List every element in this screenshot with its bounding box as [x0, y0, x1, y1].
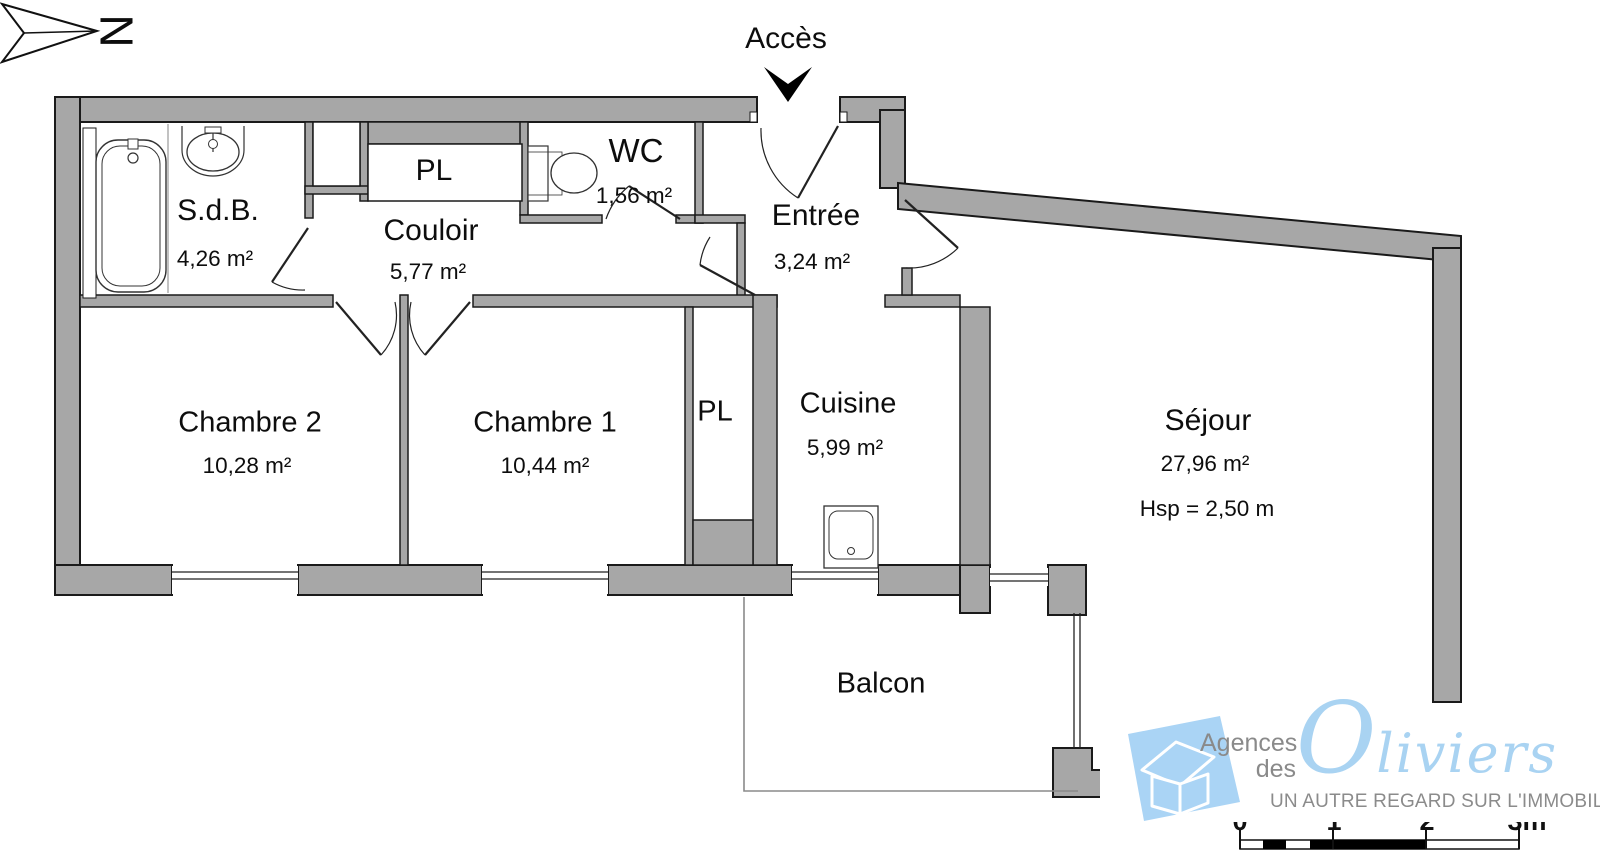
room-height-sejour: Hsp = 2,50 m	[1140, 496, 1274, 522]
room-area-cuisine: 5,99 m²	[807, 435, 883, 461]
agency-logo: Agences des Oliviers UN AUTRE REGARD SUR…	[1100, 704, 1560, 822]
access-arrow-icon	[764, 67, 812, 102]
room-label-balcon: Balcon	[837, 668, 926, 701]
scale-bar	[1240, 828, 1519, 849]
room-area-wc: 1,56 m²	[596, 183, 672, 209]
room-label-cuisine: Cuisine	[800, 388, 897, 421]
agency-brand: Oliviers	[1296, 690, 1558, 788]
chambre1-door	[410, 302, 470, 355]
room-area-chambre1: 10,44 m²	[501, 453, 590, 479]
north-label: N	[90, 14, 144, 47]
entry-door	[761, 126, 838, 198]
room-label-wc: WC	[609, 132, 664, 170]
agency-line1: Agences	[1200, 730, 1296, 756]
room-label-sdb: S.d.B.	[177, 194, 259, 228]
bathtub-icon	[96, 139, 166, 292]
room-area-chambre2: 10,28 m²	[203, 453, 292, 479]
agency-line2: des	[1200, 756, 1296, 782]
floorplan-page: N Accès S.d.B. 4,26 m² PL Couloir 5,77 m…	[0, 0, 1600, 851]
room-label-pl-top: PL	[416, 154, 453, 188]
sdb-door	[272, 228, 308, 290]
bathroom-sink-icon	[182, 126, 244, 176]
room-label-chambre1: Chambre 1	[473, 407, 616, 440]
agency-name-small: Agences des	[1200, 730, 1296, 782]
couloir-entree-door	[700, 237, 755, 295]
brand-rest: liviers	[1376, 722, 1558, 785]
room-label-couloir: Couloir	[383, 214, 478, 248]
room-area-entree: 3,24 m²	[774, 249, 850, 275]
agency-tagline: UN AUTRE REGARD SUR L'IMMOBILIER	[1270, 791, 1600, 813]
room-label-entree: Entrée	[772, 199, 860, 233]
brand-initial: O	[1296, 682, 1376, 796]
door-jambs	[750, 112, 847, 122]
room-area-couloir: 5,77 m²	[390, 259, 466, 285]
kitchen-sink-icon	[824, 506, 878, 568]
chambre2-door	[336, 302, 396, 355]
room-area-sdb: 4,26 m²	[177, 246, 253, 272]
access-label: Accès	[745, 22, 827, 56]
room-area-sejour: 27,96 m²	[1161, 451, 1250, 477]
toilet-icon	[528, 146, 597, 201]
room-label-chambre2: Chambre 2	[178, 407, 321, 440]
room-label-pl-bottom: PL	[697, 396, 732, 429]
room-label-sejour: Séjour	[1165, 404, 1252, 438]
north-arrow-icon	[2, 4, 97, 62]
